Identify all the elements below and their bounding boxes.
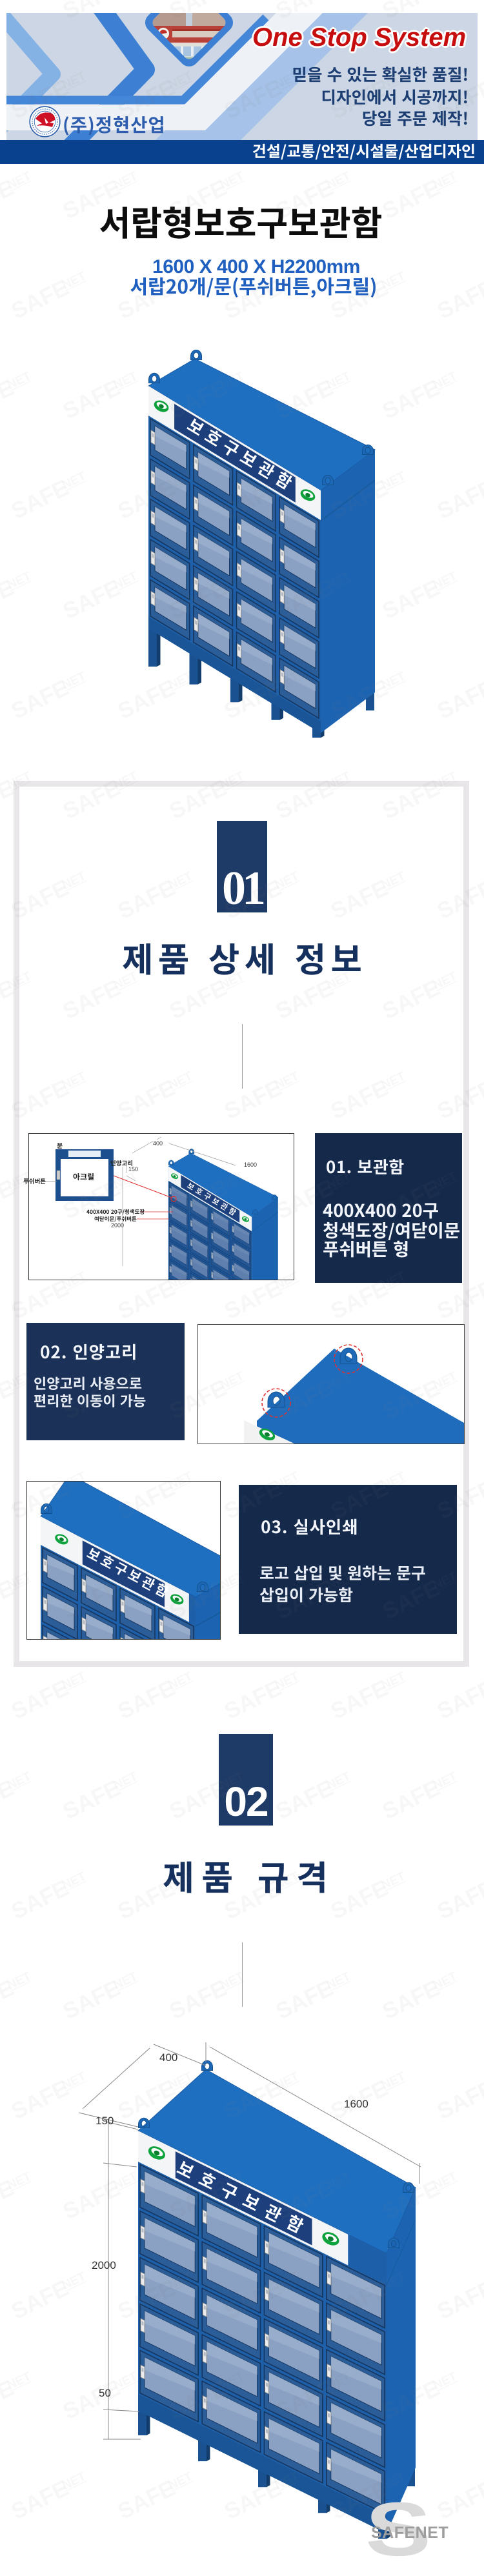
svg-text:1600: 1600 bbox=[244, 1162, 257, 1168]
svg-text:400: 400 bbox=[153, 1140, 163, 1147]
svg-text:150: 150 bbox=[128, 1166, 138, 1172]
svg-text:1600: 1600 bbox=[344, 2098, 368, 2110]
svg-text:50: 50 bbox=[99, 2387, 111, 2399]
svg-text:150: 150 bbox=[96, 2115, 114, 2127]
svg-text:2000: 2000 bbox=[92, 2259, 116, 2271]
svg-text:400: 400 bbox=[159, 2051, 177, 2064]
svg-text:2000: 2000 bbox=[111, 1222, 124, 1229]
svg-text:SAFENET: SAFENET bbox=[371, 2524, 449, 2542]
